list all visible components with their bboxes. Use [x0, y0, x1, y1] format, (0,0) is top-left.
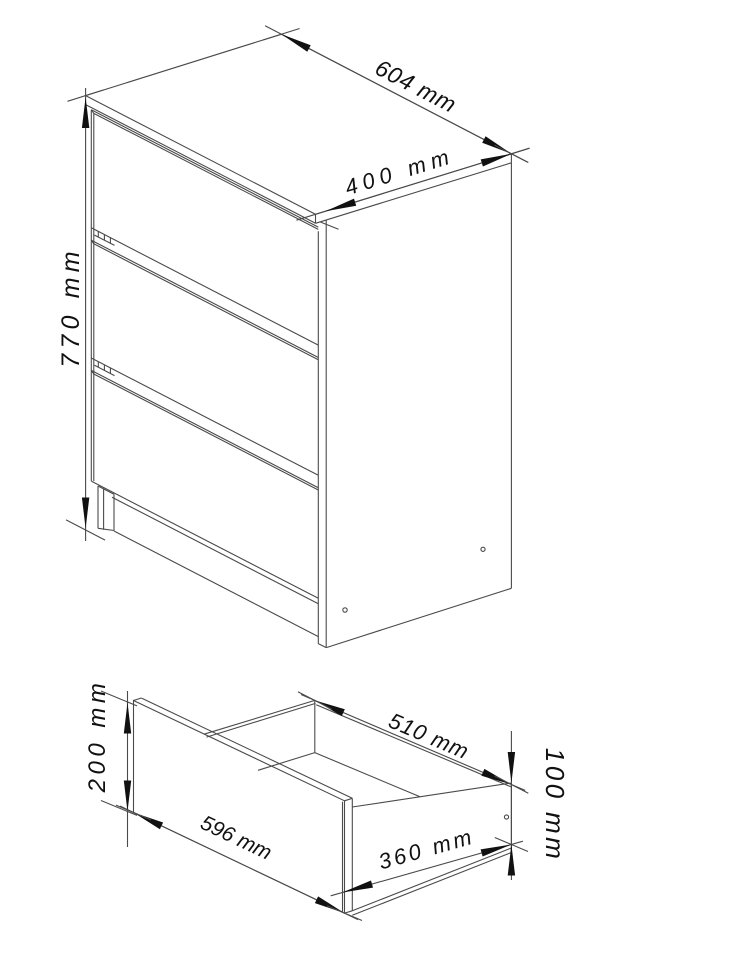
svg-text:770 mm: 770 mm: [57, 246, 85, 368]
svg-text:200 mm: 200 mm: [84, 679, 111, 794]
svg-text:100 mm: 100 mm: [540, 748, 570, 862]
